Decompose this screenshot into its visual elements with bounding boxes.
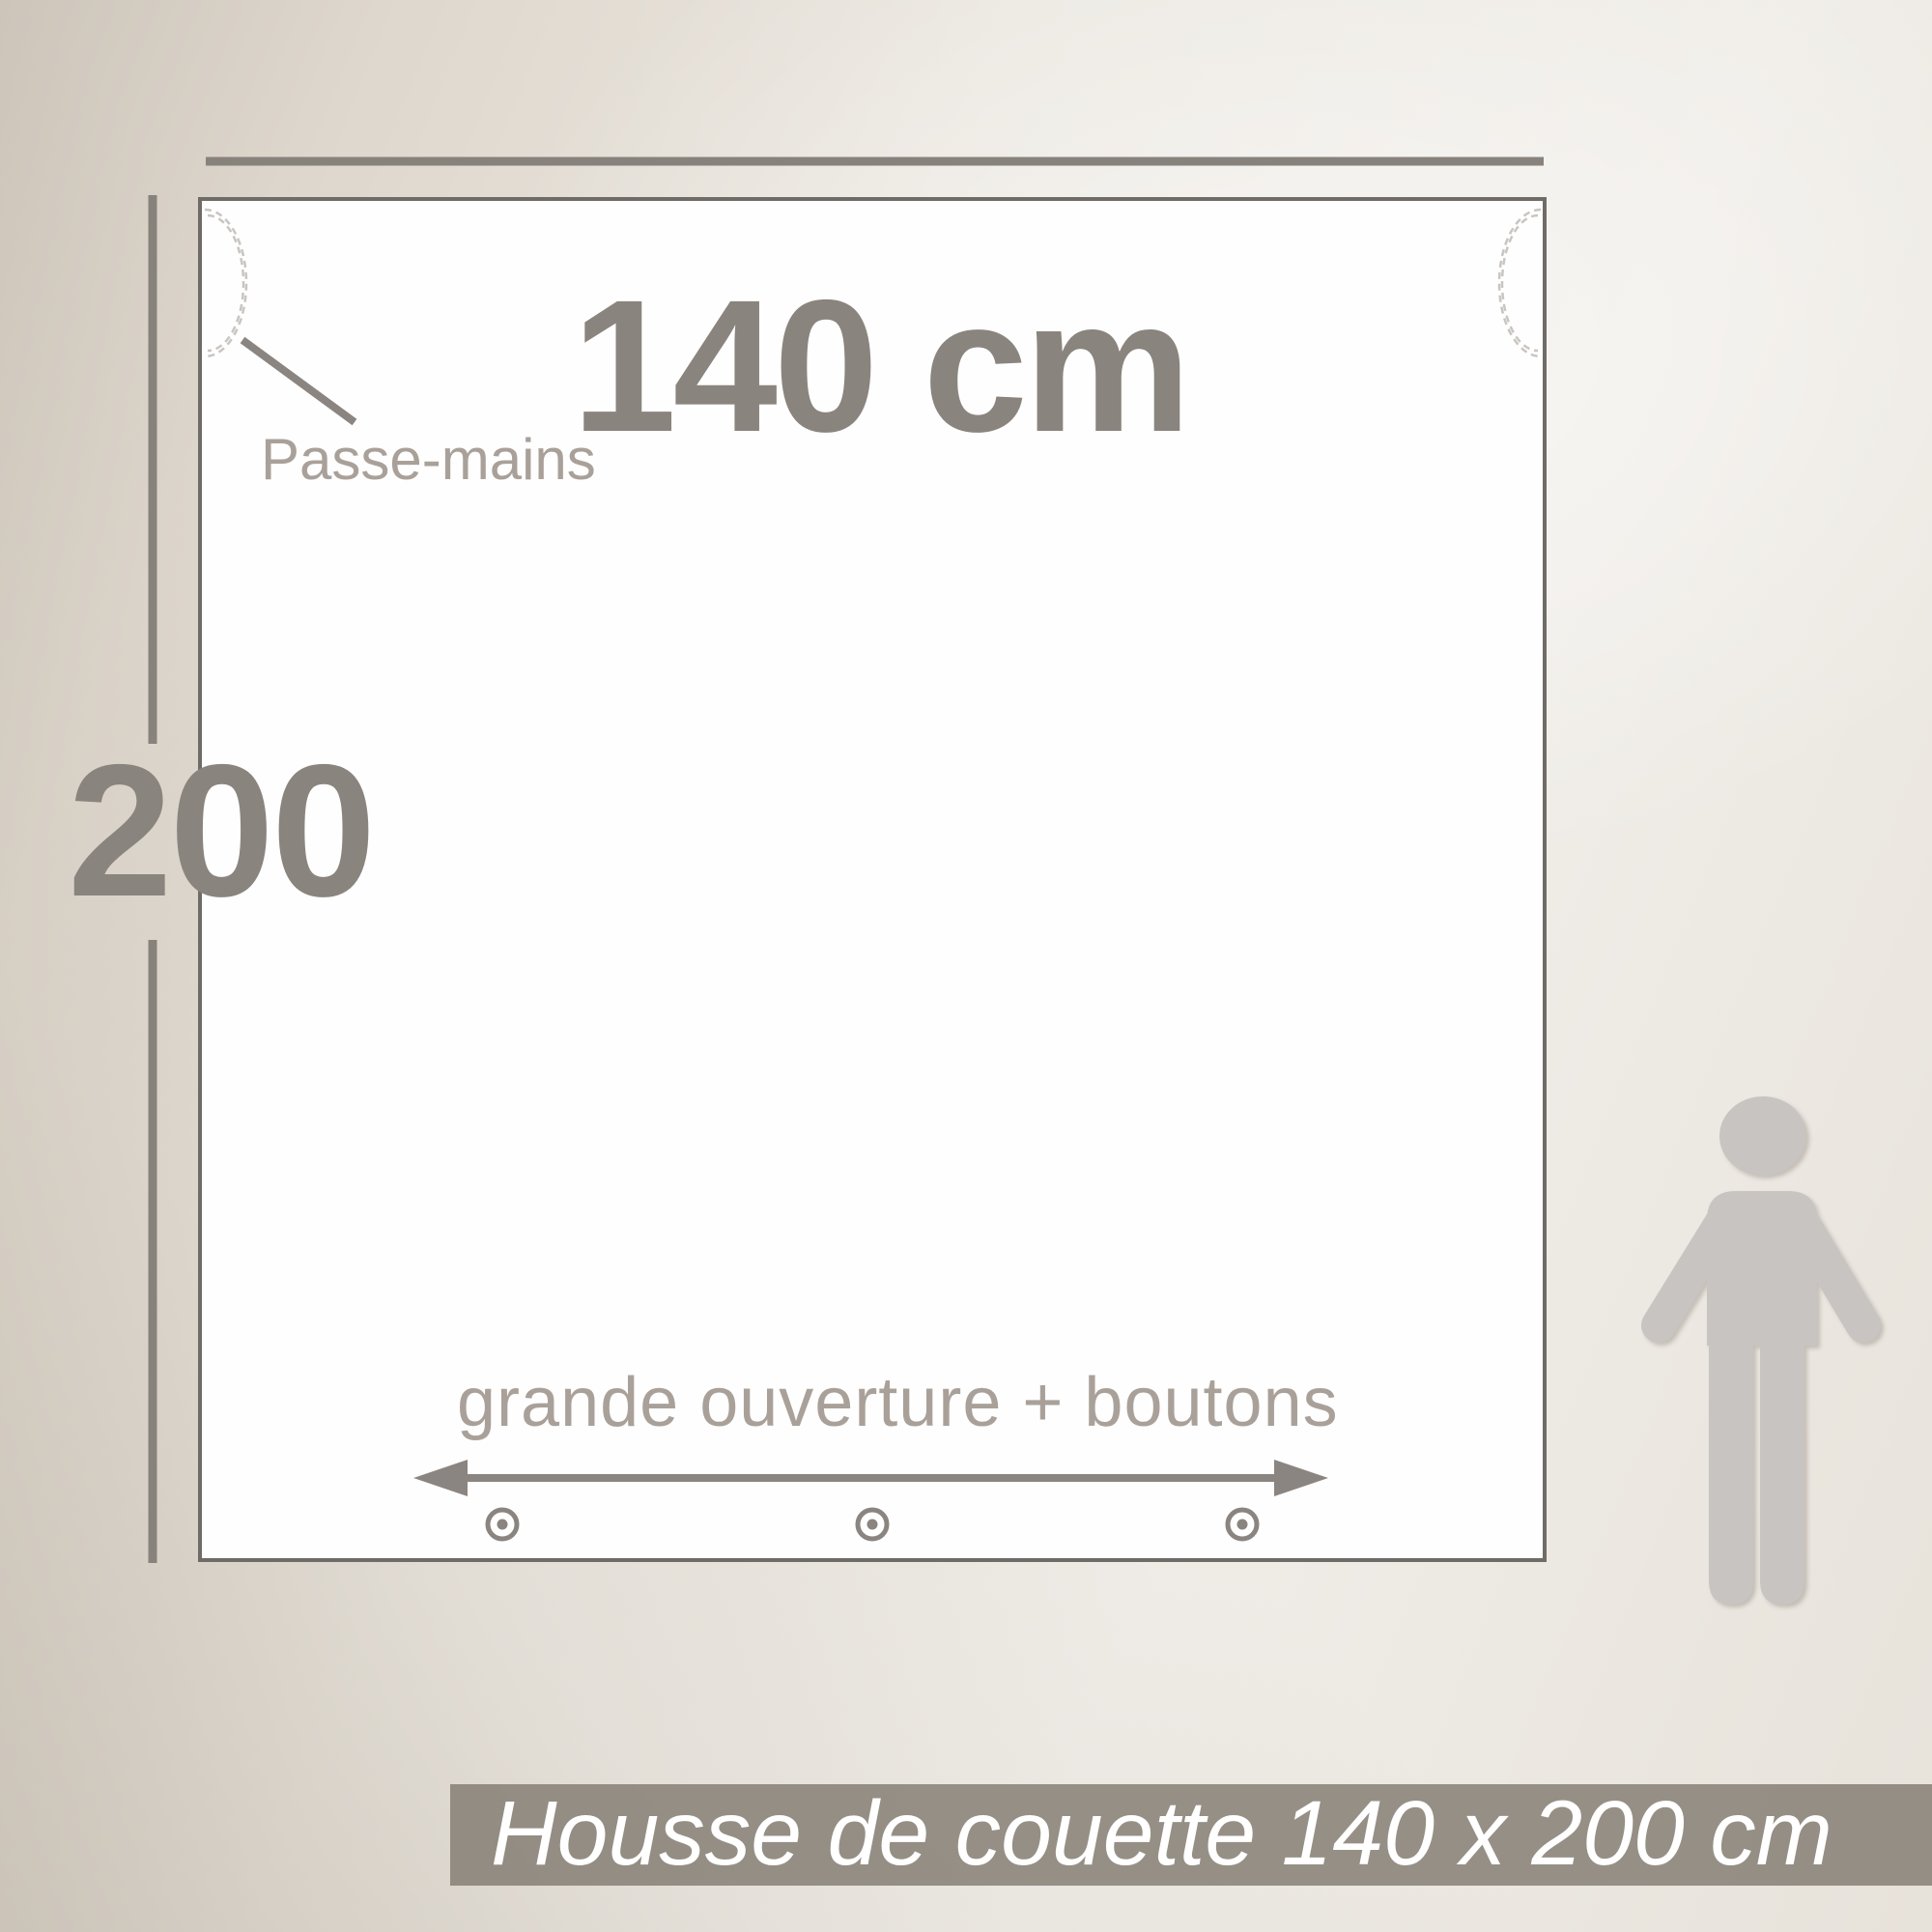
button-stud-icon — [1228, 1510, 1257, 1539]
product-dimension-diagram: 140 cm 200 Passe-mains grande ouverture … — [0, 0, 1932, 1932]
button-stud-icon — [488, 1510, 517, 1539]
hand-hole-label: Passe-mains — [261, 431, 596, 489]
height-dimension-label: 200 — [68, 737, 373, 925]
left-hand-hole-arc-icon — [205, 210, 246, 356]
right-hand-hole-arc-icon — [1499, 210, 1541, 356]
width-dimension-label: 140 cm — [572, 272, 1187, 461]
button-stud-icon — [858, 1510, 887, 1539]
person-icon — [1659, 1096, 1863, 1605]
opening-double-arrow-icon — [413, 1460, 1328, 1496]
product-title: Housse de couette 140 x 200 cm — [450, 1784, 1932, 1884]
product-title-banner: Housse de couette 140 x 200 cm — [450, 1784, 1932, 1886]
hand-hole-pointer-line — [242, 340, 355, 422]
opening-label: grande ouverture + boutons — [457, 1368, 1339, 1437]
